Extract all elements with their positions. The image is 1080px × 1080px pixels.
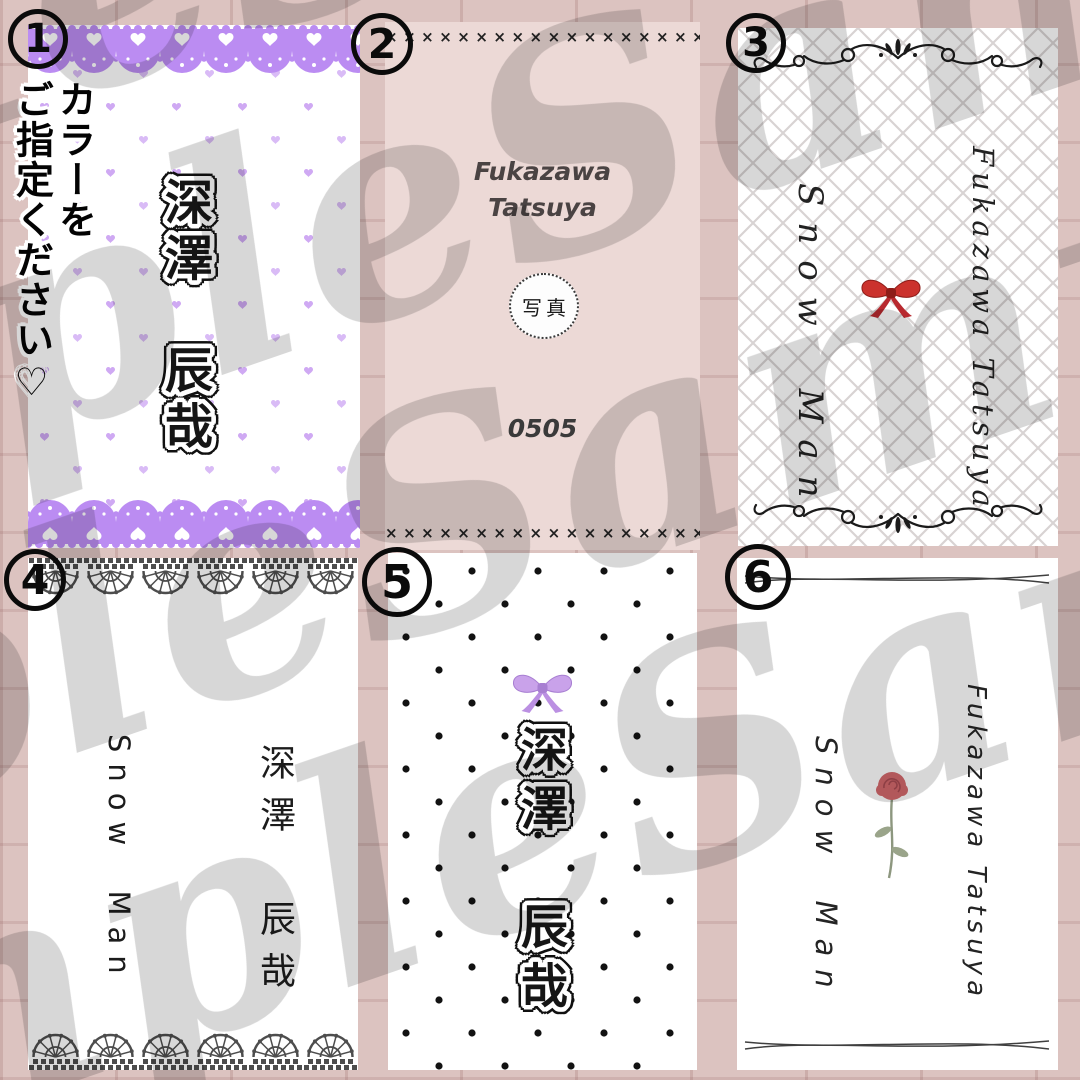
cross-border-top: ×××××××××××××××××××××× [385,28,700,46]
flourish-top [748,36,1048,72]
ribbon-bow-icon [505,661,580,716]
name-vertical-kanji: 深澤 辰哉 [248,744,300,1004]
purple-lace-bottom [28,494,360,548]
color-note: カラーを ご指定ください♡ [10,80,95,440]
design-number-badge: 3 [726,13,786,73]
design-card-2: ×××××××××××××××××××××× Fukazawa Tatsuya … [385,22,700,550]
design-number-badge: 6 [725,544,791,610]
dark-lace-bottom [28,1028,358,1070]
cross-border-bottom: ×××××××××××××××××××××× [385,524,700,542]
design-number-badge: 4 [4,549,66,611]
group-name-vertical: Snow Man [809,736,843,1001]
name-vertical-kanji: 深澤 辰哉 [160,177,208,457]
group-name-vertical: Snow Man [102,734,136,985]
design-card-3: Fukazawa Tatsuya Snow Man [738,28,1058,546]
birthday-number: 0505 [385,414,700,443]
name-english-line1: Fukazawa [385,154,700,190]
group-name-vertical: Snow Man [790,183,830,514]
rose-icon [870,770,914,882]
color-note-line1: カラーを [53,80,96,440]
name-english-vertical: Fukazawa Tatsuya [961,684,991,1001]
hand-line-bottom [743,1034,1051,1056]
design-number-badge: 1 [8,9,68,69]
name-english: Fukazawa Tatsuya [385,154,700,227]
design-card-5: 深澤 辰哉 [388,553,697,1070]
name-english-vertical: Fukazawa Tatsuya [966,146,1000,513]
photo-placeholder-circle: 写真 [509,273,579,339]
sample-sheet: 深澤 辰哉 カラーを ご指定ください♡ ××××××××××××××××××××… [0,0,1080,1080]
dark-lace-top [28,558,358,600]
design-number-badge: 2 [351,13,413,75]
design-card-6: Fukazawa Tatsuya Snow Man [737,558,1058,1070]
ribbon-bow-icon [856,266,926,321]
photo-label: 写真 [522,292,570,321]
design-card-4: 深澤 辰哉 Snow Man [28,558,358,1070]
color-note-line2: ご指定ください♡ [10,80,53,440]
name-english-line2: Tatsuya [385,190,700,226]
purple-lace-top [28,25,360,79]
name-vertical-kanji: 深澤 辰哉 [516,725,563,1020]
design-number-badge: 5 [362,547,432,617]
